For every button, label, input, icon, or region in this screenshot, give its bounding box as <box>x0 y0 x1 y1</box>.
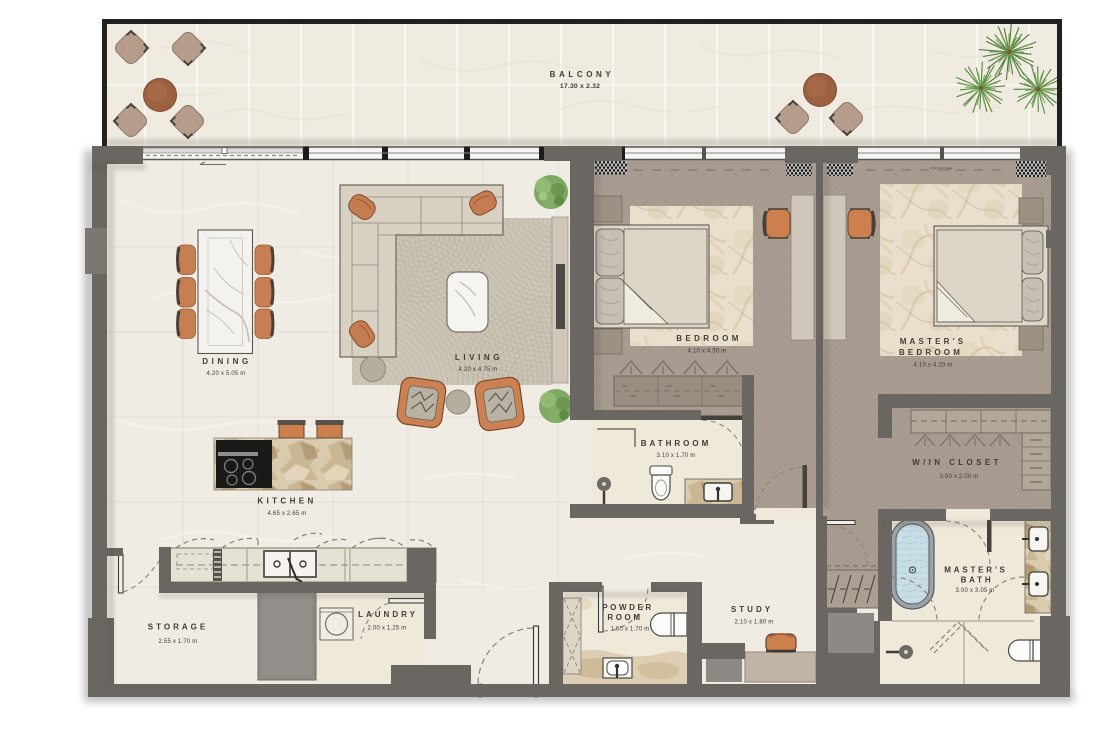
svg-text:MASTER'S: MASTER'S <box>944 566 1007 575</box>
svg-text:17.30 x 2.32: 17.30 x 2.32 <box>560 83 600 90</box>
svg-text:BALCONY: BALCONY <box>550 70 615 79</box>
svg-text:BEDROOM: BEDROOM <box>899 348 963 357</box>
svg-text:MASTER'S: MASTER'S <box>900 337 967 346</box>
svg-text:DINING: DINING <box>202 357 252 366</box>
svg-text:KITCHEN: KITCHEN <box>257 497 316 506</box>
svg-text:STUDY: STUDY <box>731 605 773 614</box>
svg-text:2.10 x 1.80 m: 2.10 x 1.80 m <box>735 620 774 626</box>
svg-text:ROOM: ROOM <box>607 613 642 622</box>
svg-text:BATH: BATH <box>961 576 994 585</box>
svg-text:2.00 x 1.25 m: 2.00 x 1.25 m <box>368 626 407 632</box>
svg-text:4.10 x 4.50 m: 4.10 x 4.50 m <box>688 349 727 355</box>
svg-text:BATHROOM: BATHROOM <box>641 439 712 448</box>
svg-text:W/IN CLOSET: W/IN CLOSET <box>912 458 1002 467</box>
svg-text:4.20 x 4.75 m: 4.20 x 4.75 m <box>459 367 498 373</box>
svg-text:BEDROOM: BEDROOM <box>676 334 742 343</box>
svg-text:1.60 x 1.70 m: 1.60 x 1.70 m <box>611 627 650 633</box>
svg-text:STORAGE: STORAGE <box>148 623 208 632</box>
svg-text:2.55 x 1.70 m: 2.55 x 1.70 m <box>159 639 198 645</box>
svg-text:4.65 x 2.65 m: 4.65 x 2.65 m <box>268 511 307 517</box>
svg-text:3.00 x 2.00 m: 3.00 x 2.00 m <box>940 474 979 480</box>
svg-text:LAUNDRY: LAUNDRY <box>358 610 418 619</box>
svg-text:POWDER: POWDER <box>602 603 654 612</box>
svg-text:3.10 x 1.70 m: 3.10 x 1.70 m <box>657 453 696 459</box>
svg-text:4.10 x 4.20 m: 4.10 x 4.20 m <box>914 363 953 369</box>
svg-text:4.20 x 5.05 m: 4.20 x 5.05 m <box>207 371 246 377</box>
svg-text:LIVING: LIVING <box>455 353 503 362</box>
svg-text:3.00 x 3.05 m: 3.00 x 3.05 m <box>956 588 995 594</box>
